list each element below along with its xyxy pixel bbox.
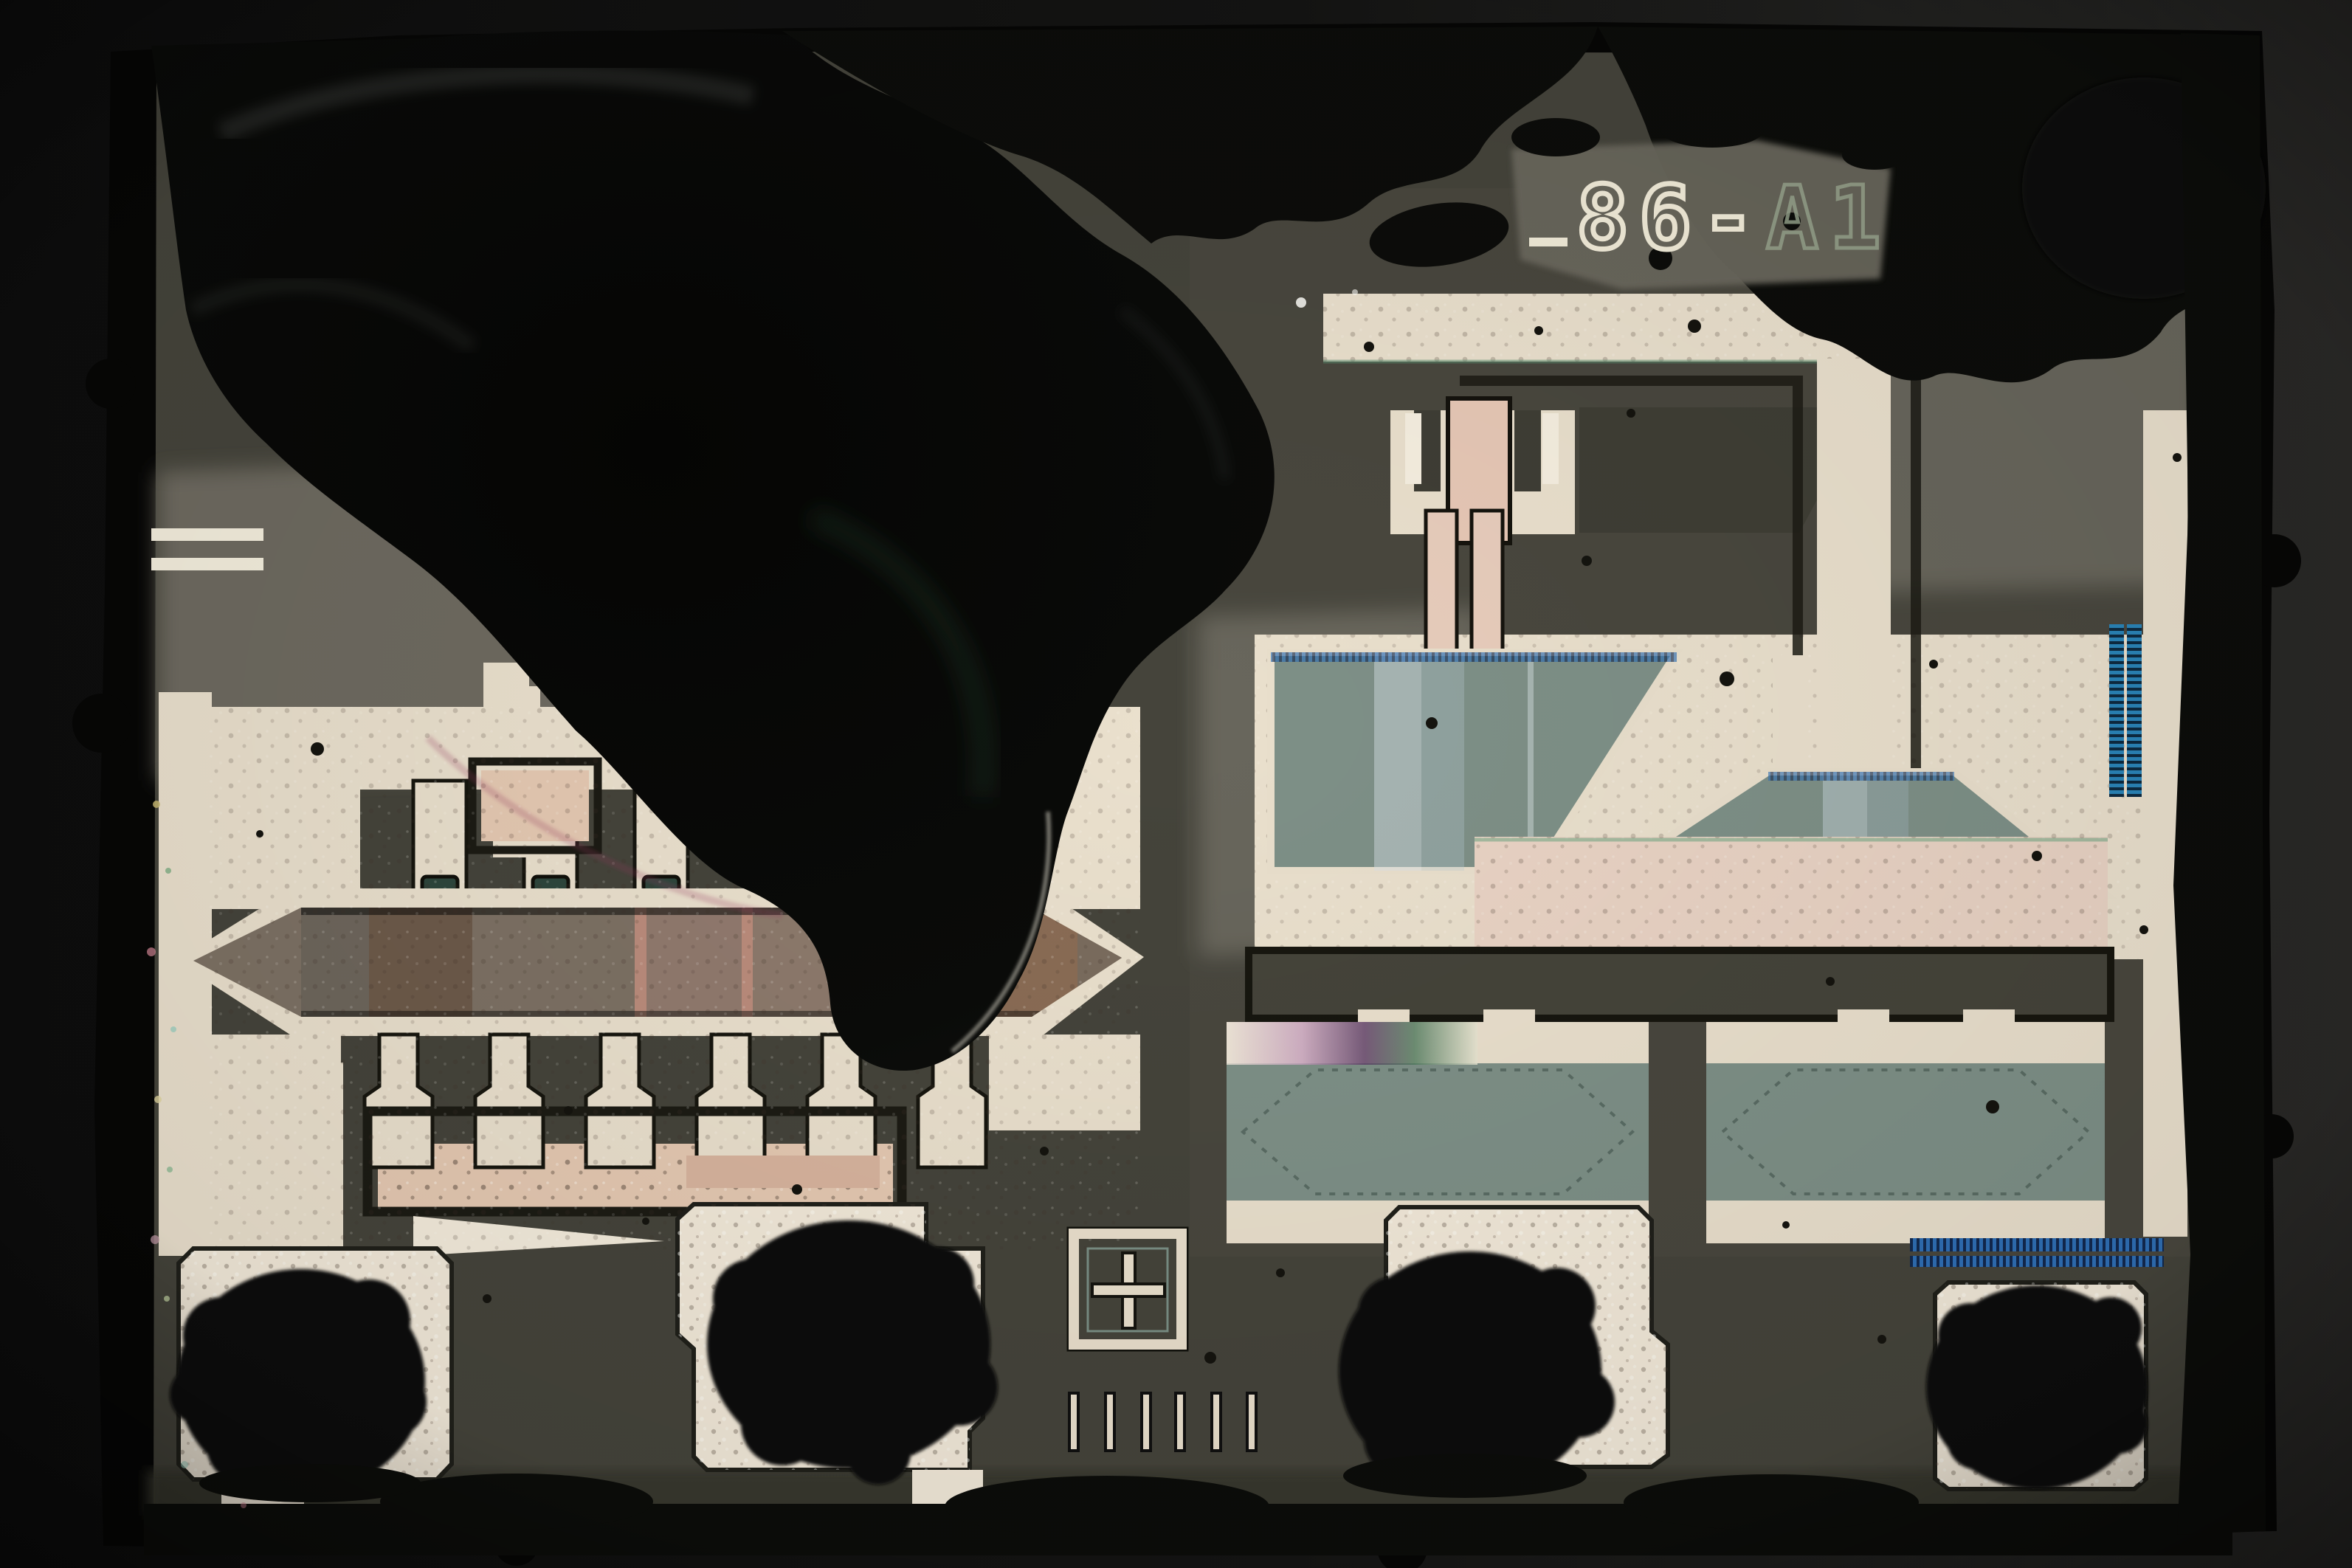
die-micrograph: 86- A1 [0, 0, 2352, 1568]
micrograph-stage: 86- A1 [0, 0, 2352, 1568]
vignette-overlay [0, 0, 2352, 1568]
